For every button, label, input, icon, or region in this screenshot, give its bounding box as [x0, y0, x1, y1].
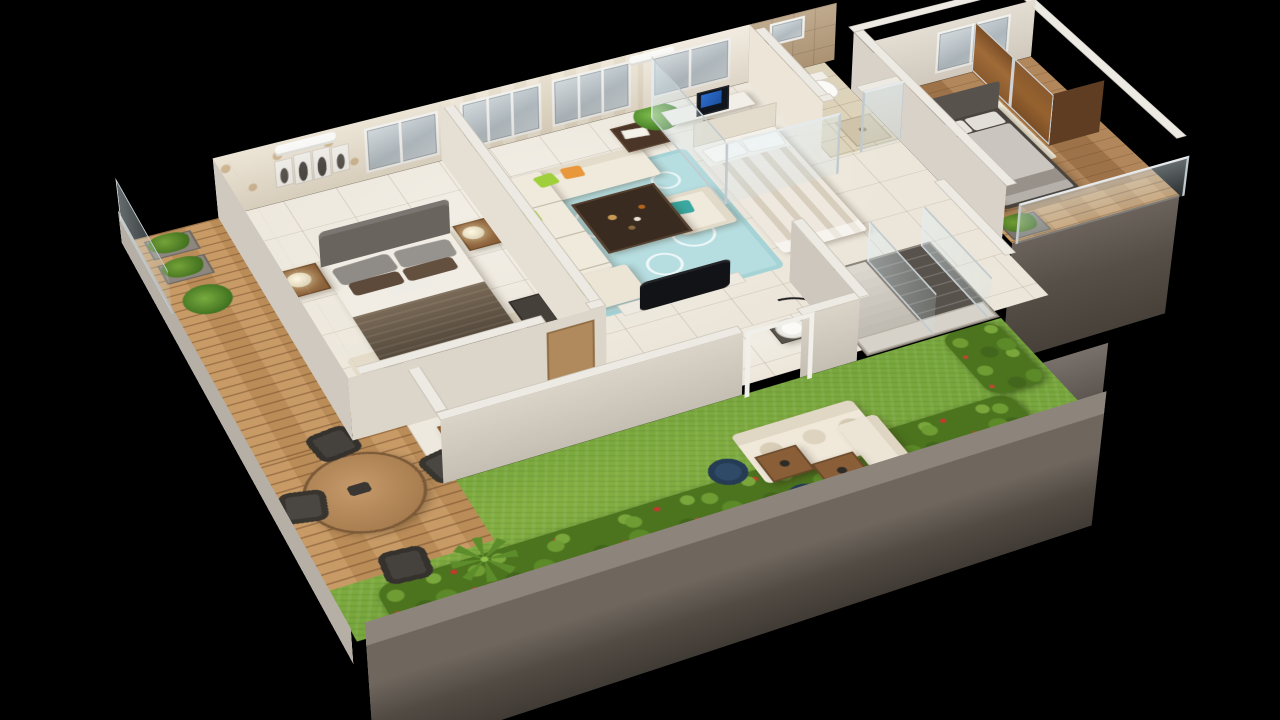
render-stage	[0, 0, 1280, 720]
viewport	[0, 0, 1280, 720]
